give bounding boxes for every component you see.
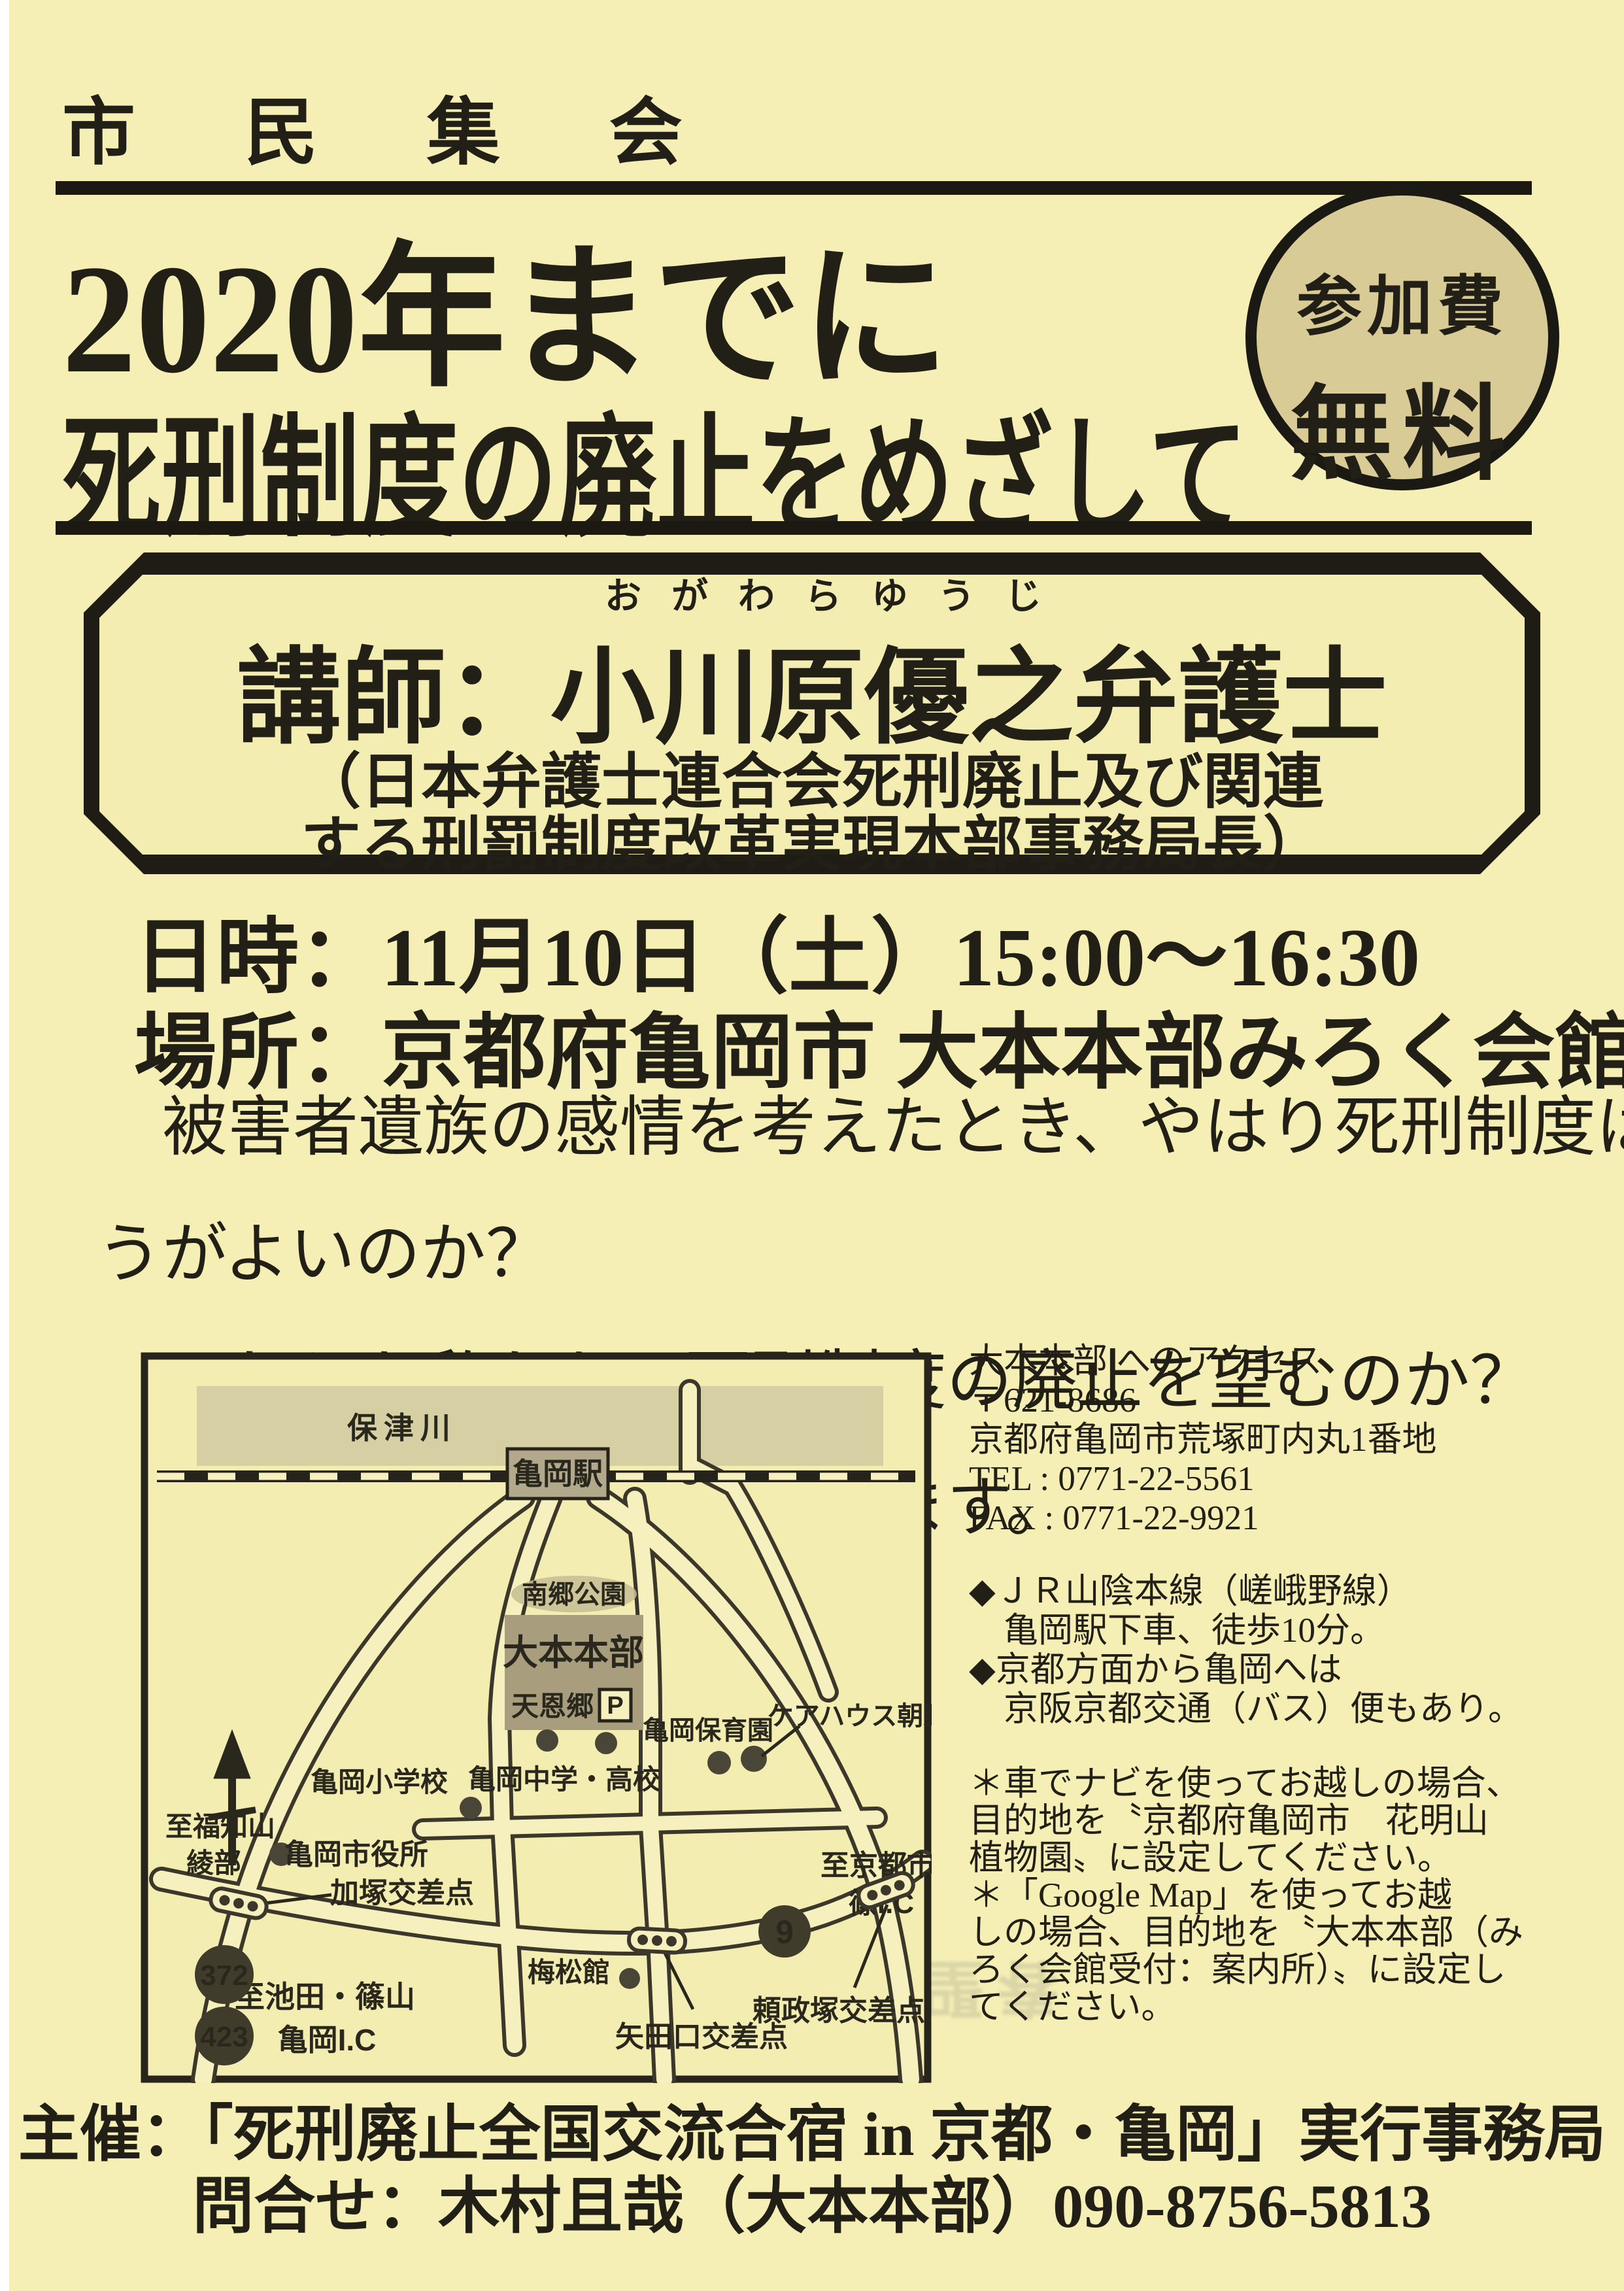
route-372-badge: 372 — [200, 1960, 248, 1992]
page-kicker: 市 民 集 会 — [62, 73, 728, 179]
route-423-badge: 423 — [200, 2021, 248, 2053]
tenonkyo-label: 天恩郷 — [511, 1691, 594, 1722]
station-label: 亀岡駅 — [513, 1457, 603, 1491]
route-9-badge: 9 — [775, 1914, 794, 1950]
car-note-line: ＊車でナビを使ってお越しの場合、 — [969, 1765, 1523, 1803]
transit-block: ◆ＪＲ山陰本線（嵯峨野線） 亀岡駅下車、徒歩10分。 ◆京都方面から亀岡へは 京… — [969, 1572, 1523, 1729]
access-heading: 大本本部 へのアクセス — [969, 1342, 1597, 1381]
elementary-school-label: 亀岡小学校 — [311, 1767, 448, 1797]
fee-badge: 参加費 無料 — [1245, 184, 1559, 490]
paragraph-line: 被害者遺族の感情を考えたとき、やはり死刑制度はあったほ — [97, 1091, 1624, 1164]
to-kyoto-label: 至京都市 — [820, 1850, 932, 1882]
headquarters-label: 大本本部 — [503, 1633, 644, 1672]
access-address: 京都府亀岡市荒塚町内丸1番地 — [969, 1420, 1597, 1459]
divider-rule-bottom — [56, 521, 1532, 535]
car-note-line: ＊「Google Map」を使ってお越 — [969, 1877, 1523, 1914]
kazuka-crossing-label: 加塚交差点 — [330, 1877, 474, 1909]
car-note-line: 植物園〟に設定してください。 — [969, 1840, 1523, 1877]
access-map-svg: 保津川 — [141, 1352, 932, 2083]
paragraph-line: うがよいのか？ — [97, 1218, 551, 1291]
event-venue: 場所：京都府亀岡市 大本本部みろく会館 — [134, 986, 1624, 1105]
transit-line: 亀岡駅下車、徒歩10分。 — [969, 1611, 1523, 1650]
ayabe-label: 綾部 — [186, 1848, 241, 1878]
to-fukuchiyama-label: 至福知山 — [165, 1811, 275, 1842]
speaker-furigana: おがわらゆうじ — [110, 567, 1566, 620]
access-map: 保津川 — [141, 1352, 932, 2083]
access-tel: TEL : 0771-22-5561 — [969, 1459, 1597, 1499]
car-note-line: てください。 — [969, 1989, 1523, 2026]
baishokan-label: 梅松館 — [528, 1957, 610, 1988]
car-note-line: ろく会館受付：案内所）〟に設定し — [969, 1952, 1523, 1989]
access-address-block: 大本本部 へのアクセス 〒621-8686 京都府亀岡市荒塚町内丸1番地 TEL… — [969, 1342, 1597, 1538]
park-label: 南郷公園 — [522, 1580, 626, 1609]
fee-badge-value: 無料 — [1257, 350, 1548, 500]
access-info-column: 大本本部 へのアクセス 〒621-8686 京都府亀岡市荒塚町内丸1番地 TEL… — [969, 1342, 1597, 1538]
river-label: 保津川 — [347, 1411, 457, 1445]
transit-line: ◆京都方面から亀岡へは — [969, 1650, 1523, 1689]
transit-line: ◆ＪＲ山陰本線（嵯峨野線） — [969, 1572, 1523, 1611]
speaker-affiliation-line2: する刑罰制度改革実現本部事務局長） — [84, 796, 1540, 883]
scan-edge — [0, 0, 9, 2291]
transit-line: 京阪京都交通（バス）便もあり。 — [969, 1689, 1523, 1729]
nursery-label: 亀岡保育園 — [643, 1716, 773, 1745]
car-note-line: 目的地を〝京都府亀岡市 花明山 — [969, 1803, 1523, 1840]
flyer-page: ゆ合き買会解懸・買 （如日は）字扱斯曾 春聖希 ぐらろ野 市 民 集 会 202… — [0, 0, 1624, 2291]
car-note-block: ＊車でナビを使ってお越しの場合、 目的地を〝京都府亀岡市 花明山 植物園〟に設定… — [969, 1765, 1523, 2026]
kameoka-ic-label: 亀岡I.C — [278, 2023, 377, 2057]
contact-line: 問合せ：木村且哉（大本本部）090-8756-5813 — [0, 2156, 1624, 2245]
car-note-line: しの場合、目的地を〝大本本部（み — [969, 1914, 1523, 1952]
care-house-label: ケアハウス朝野 — [768, 1702, 932, 1731]
to-ikeda-label: 至池田・篠山 — [235, 1980, 415, 2014]
yorimasazuka-crossing-label: 頼政塚交差点 — [753, 1995, 925, 2027]
fee-badge-label: 参加費 — [1257, 253, 1548, 348]
city-hall-label: 亀岡市役所 — [284, 1839, 428, 1871]
access-postal: 〒621-8686 — [969, 1381, 1597, 1420]
parking-letter: P — [607, 1692, 623, 1720]
access-fax: FAX : 0771-22-9921 — [969, 1499, 1597, 1538]
speaker-box: おがわらゆうじ 講師：小川原優之弁護士 （日本弁護士連合会死刑廃止及び関連 する… — [84, 552, 1540, 874]
junior-high-label: 亀岡中学・高校 — [468, 1764, 660, 1795]
